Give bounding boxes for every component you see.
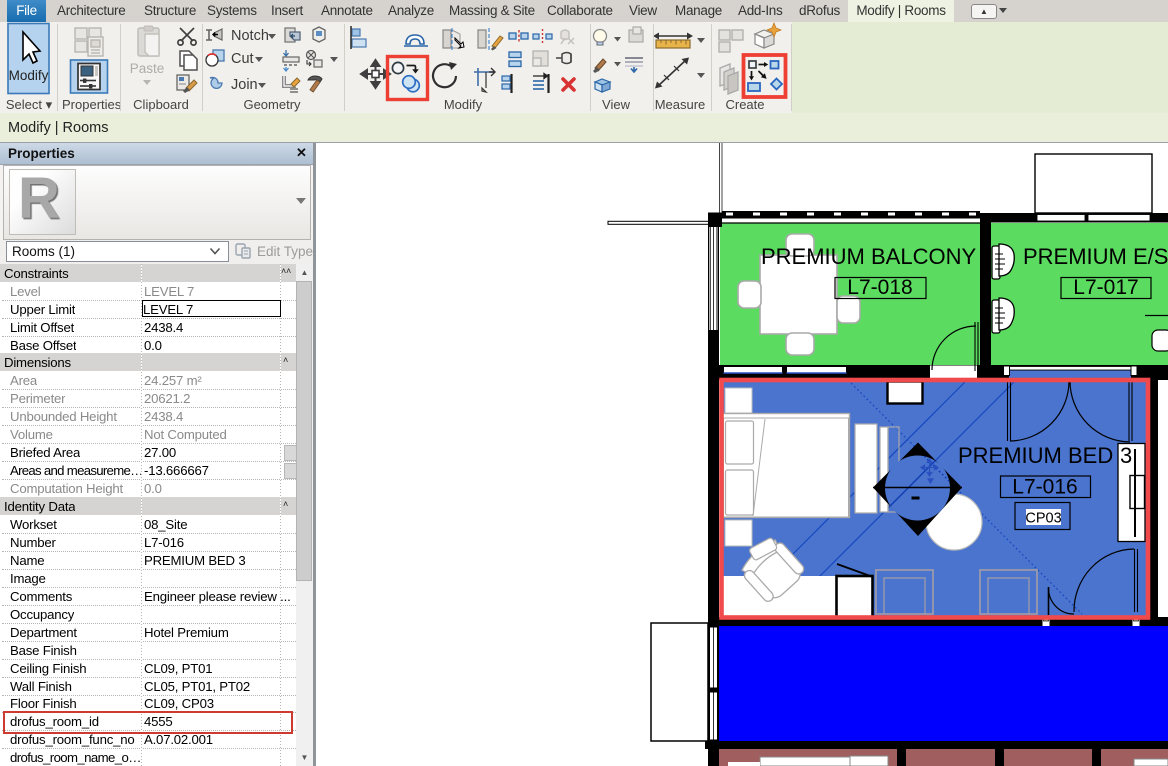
svg-text:CP03: CP03 [1025, 511, 1061, 527]
svg-text:PREMIUM BED: PREMIUM BED [958, 443, 1113, 468]
svg-text:Cut: Cut [231, 51, 254, 67]
svg-text:Modify: Modify [9, 68, 49, 83]
svg-text:3: 3 [1120, 443, 1132, 468]
svg-text:Paste: Paste [130, 61, 165, 76]
svg-text:Notch: Notch [231, 28, 269, 44]
svg-text:PREMIUM E/S: PREMIUM E/S [1023, 244, 1168, 269]
svg-text:L7-016: L7-016 [1012, 476, 1077, 499]
svg-text:PREMIUM BALCONY: PREMIUM BALCONY [761, 244, 976, 269]
svg-text:L7-018: L7-018 [847, 276, 912, 299]
svg-text:L7-017: L7-017 [1073, 276, 1138, 299]
svg-text:Join: Join [231, 77, 258, 93]
